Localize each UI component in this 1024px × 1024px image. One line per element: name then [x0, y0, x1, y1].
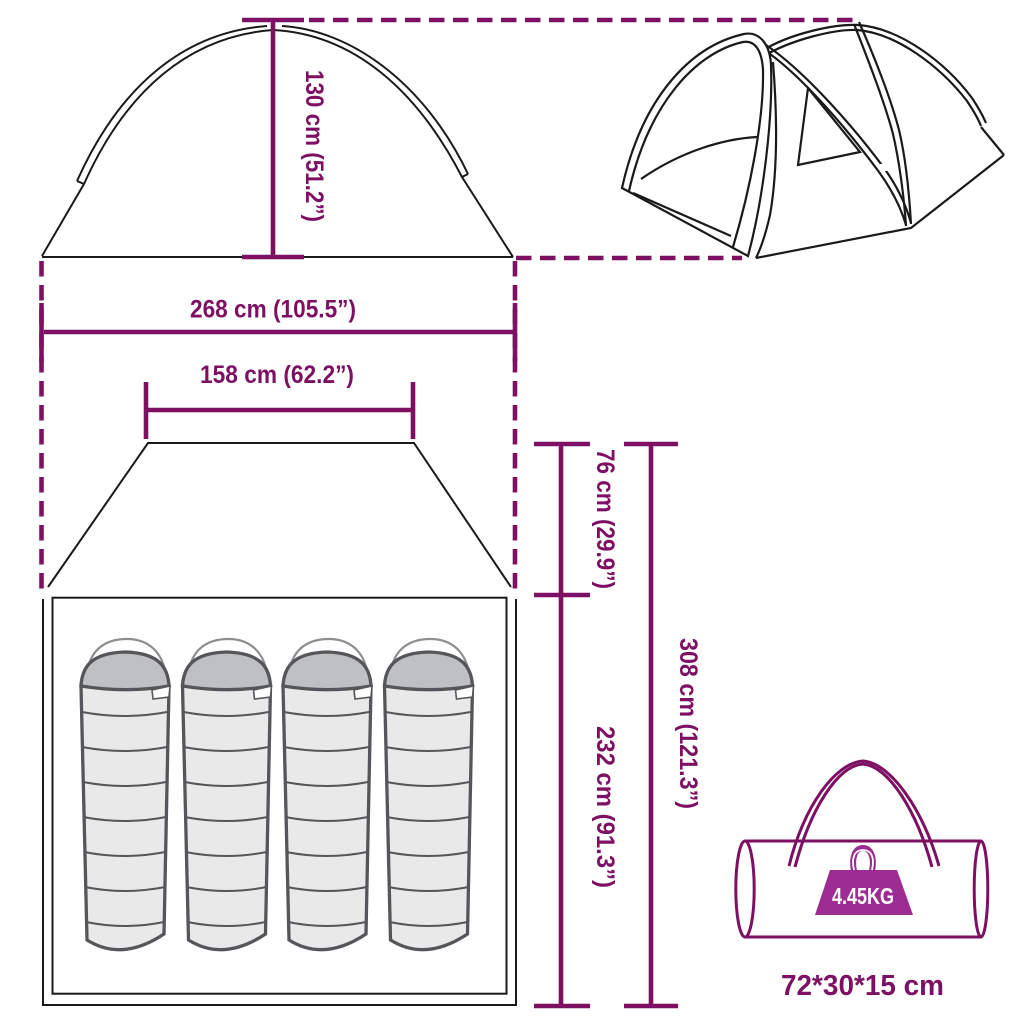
svg-text:72*30*15 cm: 72*30*15 cm	[781, 970, 944, 1002]
svg-text:308 cm (121.3”): 308 cm (121.3”)	[674, 638, 702, 809]
svg-text:268 cm (105.5”): 268 cm (105.5”)	[190, 296, 356, 324]
svg-text:130 cm (51.2”): 130 cm (51.2”)	[300, 70, 328, 222]
svg-text:158 cm (62.2”): 158 cm (62.2”)	[200, 361, 354, 389]
svg-text:76 cm (29.9”): 76 cm (29.9”)	[591, 449, 619, 589]
svg-text:232 cm (91.3”): 232 cm (91.3”)	[591, 726, 619, 888]
svg-text:4.45KG: 4.45KG	[832, 883, 894, 909]
